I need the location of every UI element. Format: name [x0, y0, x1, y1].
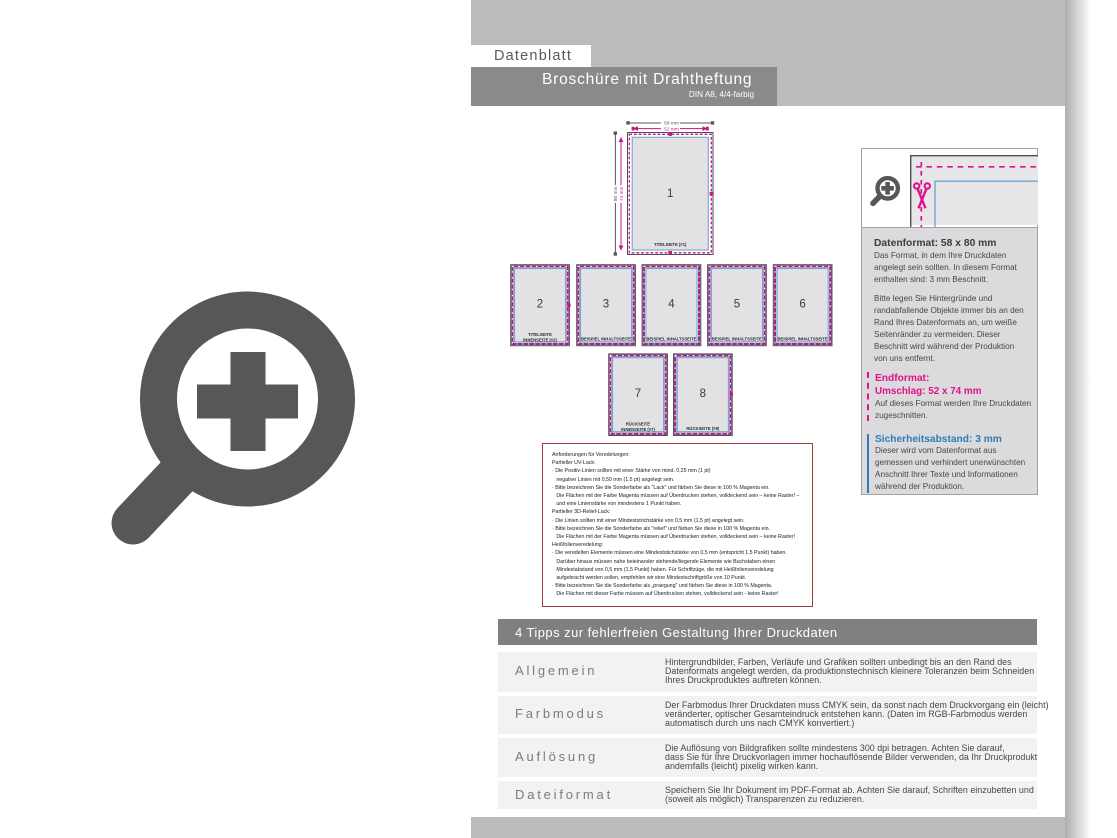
svg-text:58 mm: 58 mm	[664, 121, 679, 127]
svg-text:BEISPIEL INHALTSSEITE: BEISPIEL INHALTSSEITE	[712, 337, 762, 342]
svg-text:1: 1	[667, 188, 673, 200]
svg-text:3: 3	[603, 299, 609, 311]
svg-text:TITELSEITE (#1): TITELSEITE (#1)	[654, 242, 687, 247]
svg-text:BEISPIEL INHALTSSEITE: BEISPIEL INHALTSSEITE	[581, 337, 631, 342]
svg-text:RÜCKSEITE (#8): RÜCKSEITE (#8)	[686, 426, 719, 431]
svg-text:52 mm: 52 mm	[664, 126, 679, 132]
svg-text:2: 2	[537, 299, 543, 311]
svg-text:BEISPIEL INHALTSSEITE: BEISPIEL INHALTSSEITE	[778, 337, 828, 342]
svg-text:4: 4	[668, 299, 675, 311]
svg-text:6: 6	[799, 299, 805, 311]
svg-text:RÜCKSEITE: RÜCKSEITE	[626, 421, 650, 426]
svg-text:INNENSEITE (#2): INNENSEITE (#2)	[523, 337, 557, 342]
svg-text:8: 8	[700, 388, 706, 400]
svg-text:INNENSEITE (#7): INNENSEITE (#7)	[621, 427, 655, 432]
svg-text:TITELSEITE: TITELSEITE	[528, 332, 552, 337]
svg-text:BEISPIEL INHALTSSEITE: BEISPIEL INHALTSSEITE	[646, 337, 696, 342]
svg-text:74 mm: 74 mm	[619, 186, 625, 201]
svg-text:7: 7	[635, 388, 641, 400]
svg-text:5: 5	[734, 299, 740, 311]
svg-text:80 mm: 80 mm	[613, 186, 619, 201]
